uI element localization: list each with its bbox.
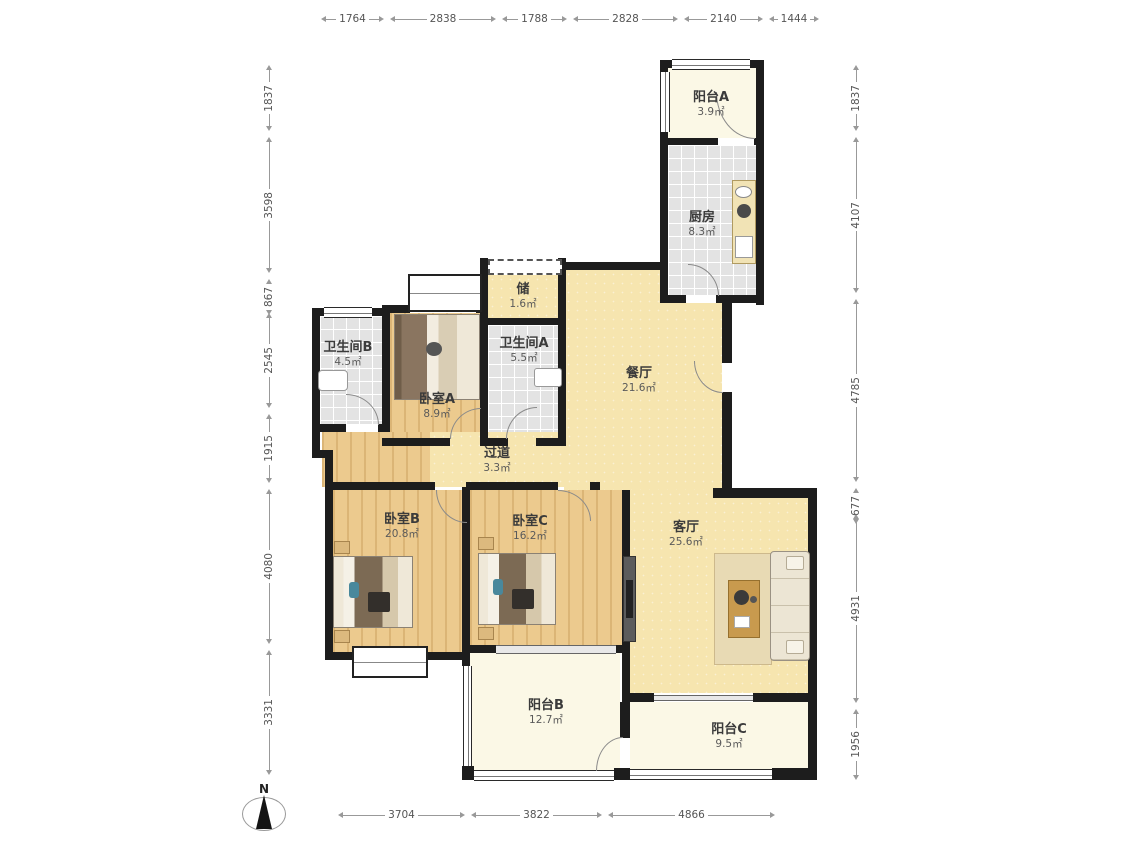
nightstand	[334, 630, 350, 643]
wall	[480, 438, 508, 446]
bay-window	[352, 646, 428, 678]
room-label-balcony-a: 阳台A3.9㎡	[693, 90, 729, 119]
nightstand	[478, 627, 494, 640]
wall	[713, 488, 817, 498]
wall	[556, 262, 668, 270]
wall	[480, 318, 564, 325]
room-label-living: 客厅25.6㎡	[669, 520, 703, 549]
sofa-pillow	[786, 556, 804, 570]
bed-a	[394, 314, 480, 400]
coffee-table	[728, 580, 760, 638]
window	[630, 769, 772, 780]
wall	[620, 702, 630, 738]
wall	[622, 693, 654, 702]
kitchen-appliance	[735, 236, 753, 258]
tv-screen	[626, 580, 633, 618]
room-label-bath-a: 卫生间A5.5㎡	[499, 336, 548, 365]
wall	[462, 766, 474, 780]
north-label: N	[236, 782, 292, 796]
bay-window	[408, 274, 482, 312]
room-label-balcony-b: 阳台B12.7㎡	[528, 698, 564, 727]
floorplan-canvas: 1764 2838 1788 2828 2140 1444 1837 3598 …	[0, 0, 1125, 844]
door-arc	[596, 737, 623, 771]
door-opening	[686, 295, 716, 303]
door-arc	[688, 264, 719, 296]
wall	[325, 482, 435, 490]
room-label-balcony-c: 阳台C9.5㎡	[711, 722, 747, 751]
sofa-pillow	[786, 640, 804, 654]
wall	[722, 303, 732, 363]
room-label-bedroom-c: 卧室C16.2㎡	[512, 514, 548, 543]
wall	[466, 482, 558, 490]
window	[474, 770, 614, 781]
wall	[722, 392, 732, 490]
bathtub-bath-b	[318, 370, 348, 391]
window	[672, 59, 750, 70]
wall	[590, 482, 600, 490]
room-label-kitchen: 厨房8.3㎡	[688, 210, 715, 239]
wall	[462, 648, 470, 666]
wall	[558, 258, 566, 442]
door-arc	[436, 490, 467, 523]
sliding-door	[654, 695, 753, 701]
nightstand	[478, 537, 494, 550]
room-label-bath-b: 卫生间B4.5㎡	[324, 340, 373, 369]
washbasin-bath-a	[534, 368, 562, 387]
north-compass: N	[236, 782, 292, 838]
bed-b-pillow	[349, 582, 359, 598]
bed-c-pillow	[493, 579, 503, 595]
sliding-door	[496, 645, 616, 654]
window	[324, 307, 372, 318]
table-pad	[734, 616, 750, 628]
room-label-bedroom-b: 卧室B20.8㎡	[384, 512, 420, 541]
bed-a-decor	[426, 342, 442, 356]
wall	[753, 693, 813, 702]
window	[660, 72, 670, 132]
dashed-opening	[488, 259, 562, 275]
wall	[382, 308, 390, 432]
nightstand	[334, 541, 350, 554]
bed-b-panel	[368, 592, 390, 612]
door-arc	[346, 394, 379, 425]
wall	[312, 424, 346, 432]
bed-c-panel	[512, 589, 534, 609]
room-label-storage: 储1.6㎡	[509, 282, 536, 311]
table-decor	[734, 590, 749, 605]
table-decor-small	[750, 596, 757, 603]
room-label-bedroom-a: 卧室A8.9㎡	[419, 392, 455, 421]
wall	[536, 438, 566, 446]
wall	[382, 438, 450, 446]
kitchen-stove	[737, 204, 751, 218]
wall	[382, 305, 410, 313]
north-arrow-icon	[256, 795, 272, 829]
wall	[808, 690, 817, 780]
window	[463, 666, 472, 766]
wall	[378, 424, 390, 432]
compass-circle	[242, 797, 286, 831]
door-arc	[694, 361, 723, 393]
door-arc	[558, 490, 591, 521]
door-opening	[718, 138, 754, 145]
wall	[756, 60, 764, 305]
door-arc	[506, 407, 537, 439]
room-label-dining: 餐厅21.6㎡	[622, 366, 656, 395]
room-label-hallway: 过道3.3㎡	[483, 446, 510, 475]
kitchen-sink	[735, 186, 752, 198]
wall	[616, 645, 630, 653]
